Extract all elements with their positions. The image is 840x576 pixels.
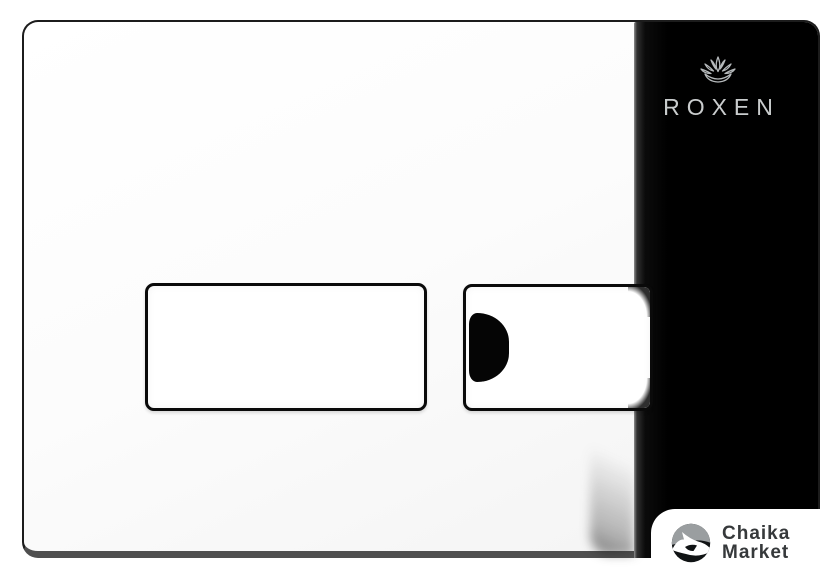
product-photo: ROXEN Chaika Market: [0, 0, 840, 576]
brand-logo: ROXEN: [634, 54, 802, 121]
watermark-line1: Chaika: [722, 524, 790, 543]
watermark-badge: Chaika Market: [651, 509, 840, 576]
lotus-icon: [698, 54, 738, 88]
button-corner-shade-top: [628, 287, 650, 317]
button-corner-shade-bottom: [628, 378, 650, 408]
button-reflection: [469, 313, 509, 382]
watermark-line2: Market: [722, 543, 790, 562]
chrome-reflection-smudge: [590, 405, 634, 555]
watermark-text: Chaika Market: [722, 524, 790, 562]
brand-panel: ROXEN: [634, 22, 818, 558]
flush-button-large: [145, 283, 427, 411]
brand-name: ROXEN: [634, 94, 802, 121]
flush-plate: ROXEN: [22, 20, 820, 558]
seagull-icon: [671, 523, 711, 563]
flush-button-small: [463, 284, 653, 411]
